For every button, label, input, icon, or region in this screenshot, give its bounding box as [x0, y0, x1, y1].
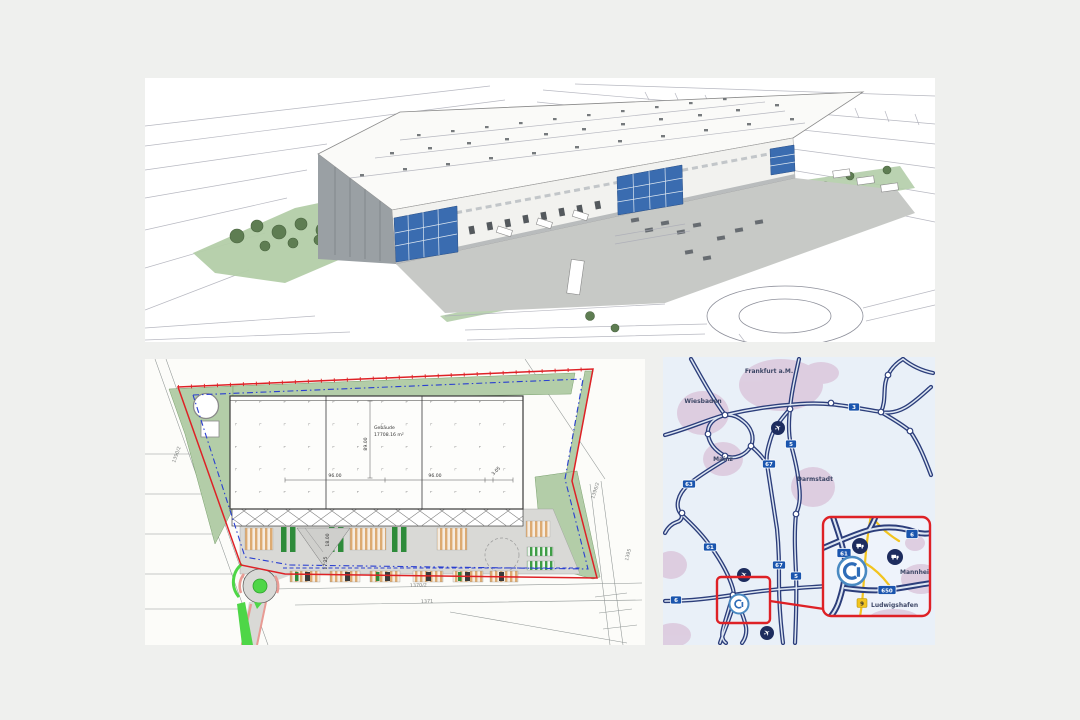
dim-width-left: 96.00	[328, 473, 341, 479]
parcel-1396-2: 1396/2	[590, 482, 601, 500]
badge-a61: 61	[706, 545, 714, 551]
badge-a3: 3	[852, 405, 856, 411]
inset-map: 61 6 650 9 Mannheim Ludwigshafen	[823, 515, 935, 631]
city-darmstadt: Darmstadt	[797, 476, 833, 483]
building-area: 17708.16 m²	[374, 432, 404, 438]
location-map-panel: ✈ ✈ ✈ 3 5 67 63 61 6 67 5 Frankfurt a.M.…	[663, 357, 935, 645]
badge-a5: 5	[789, 442, 793, 448]
retention-tank	[194, 394, 219, 419]
parcel-1371: 1371	[421, 599, 433, 605]
dim-depth: 89.00	[363, 437, 369, 450]
building-footprint	[230, 396, 523, 509]
city-mainz: Mainz	[713, 456, 733, 463]
parcel-1395: 1395	[624, 548, 633, 561]
site-logo-marker	[730, 595, 749, 614]
city-wiesbaden: Wiesbaden	[684, 398, 721, 405]
svg-text:9: 9	[860, 601, 864, 607]
site-plan-panel: 96.00 96.00 3.05 89.00 Gebäude 17708.16 …	[145, 359, 645, 645]
inset-badge-b9: 9	[857, 599, 867, 608]
roundabout	[233, 564, 278, 645]
badge-a6: 6	[674, 598, 678, 604]
inset-badge-a6: 6	[910, 532, 914, 538]
parcel-1390-2: 1390/2	[171, 446, 182, 464]
parcel-1370-2: 1370/2	[410, 582, 427, 589]
aerial-rendering-panel	[145, 78, 935, 342]
canopy-bracing	[232, 509, 523, 526]
location-map: ✈ ✈ ✈ 3 5 67 63 61 6 67 5 Frankfurt a.M.…	[663, 357, 935, 645]
badge-a63: 63	[685, 482, 693, 488]
inset-city-ludwigshafen: Ludwigshafen	[871, 602, 918, 609]
page-canvas: { "canvas": { "bg": "#eff0ee" }, "colors…	[0, 0, 1080, 720]
city-frankfurt: Frankfurt a.M.	[745, 368, 793, 375]
dim-court: 18.00	[325, 533, 331, 546]
inset-badge-a650: 650	[881, 588, 893, 594]
dim-width-right: 96.00	[428, 473, 441, 479]
dim-court-inner: 17.25	[323, 556, 329, 569]
building-label: Gebäude	[374, 425, 395, 431]
inset-badge-a61: 61	[840, 551, 848, 557]
inset-site-logo-marker	[838, 557, 866, 585]
badge-a67-south: 67	[775, 563, 783, 569]
site-plan-drawing: 96.00 96.00 3.05 89.00 Gebäude 17708.16 …	[145, 359, 645, 645]
aerial-rendering-image	[145, 78, 935, 342]
badge-a5-south: 5	[794, 574, 798, 580]
badge-a67: 67	[765, 462, 773, 468]
